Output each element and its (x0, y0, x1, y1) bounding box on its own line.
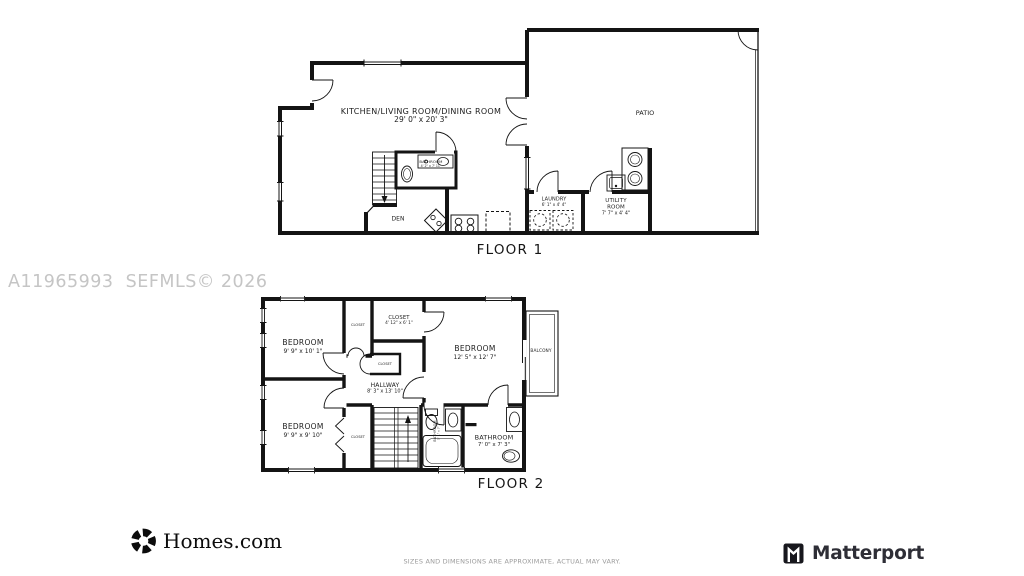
room-name: BEDROOM (282, 339, 323, 348)
disclaimer-text: SIZES AND DIMENSIONS ARE APPROXIMATE, AC… (403, 558, 620, 566)
sink-icon (510, 412, 520, 427)
room-label-closet-bottom: CLOSET (351, 435, 365, 439)
room-dims: 5' 1" x 7' 2" (437, 420, 441, 441)
room-name: UTILITY ROOM (600, 198, 633, 211)
staircase-down-icon (373, 152, 397, 205)
sink-icon (448, 413, 458, 427)
room-label-bedroom-right: BEDROOM 12' 5" x 12' 7" (454, 345, 497, 361)
mls-watermark: A11965993 SEFMLS© 2026 (8, 272, 267, 292)
floorplan-page: { "watermark": "A11965993 SEFMLS© 2026",… (0, 0, 1024, 576)
room-label-bedroom-bottom-left: BEDROOM 9' 9" x 9' 10" (282, 423, 323, 439)
towel-bar-icon (466, 423, 477, 426)
room-dims: 7' 0" x 7' 3" (475, 442, 514, 448)
room-label-closet-center: CLOSET (378, 362, 392, 366)
room-label-patio: PATIO (636, 110, 654, 118)
patio-fence (738, 30, 758, 233)
room-dims: 29' 0" x 20' 3" (341, 116, 501, 125)
room-dims: 9' 9" x 9' 10" (282, 432, 323, 439)
room-label-closet-top: CLOSET (351, 323, 365, 327)
floor1-walls (278, 30, 759, 233)
homes-logo: Homes.com (130, 527, 282, 555)
room-dims: 9' 9" x 10' 1" (282, 348, 323, 355)
room-label-balcony: BALCONY (530, 348, 551, 353)
stacked-washer-dryer-icon (622, 148, 648, 190)
room-name: BEDROOM (454, 345, 497, 354)
room-label-bedroom-top-left: BEDROOM 9' 9" x 10' 1" (282, 339, 323, 355)
room-name: HALLWAY (367, 382, 403, 389)
room-dims: 7' 7" x 4' 4" (600, 211, 633, 217)
kitchen-fixtures (425, 209, 511, 233)
washer-dryer-icon (530, 211, 573, 231)
room-dims: 8' 3" x 13' 10" (367, 389, 403, 395)
floor1-title: FLOOR 1 (477, 242, 544, 258)
room-label-bathroom1: BATHROOM 4' 2" x 7' 11" (419, 160, 442, 168)
room-dims: 4' 2" x 7' 11" (419, 164, 442, 168)
staircase-up-icon (374, 408, 418, 469)
kitchen-sink-icon (425, 209, 448, 232)
floor1-plan-svg (260, 18, 770, 250)
matterport-logo-text: Matterport (812, 543, 924, 564)
room-label-bathroom-middle: BATHROOM 5' 1" x 7' 2" (433, 420, 441, 441)
room-label-utility: UTILITY ROOM 7' 7" x 4' 4" (600, 198, 633, 217)
room-dims: 6' 1" x 4' 4" (542, 202, 567, 207)
room-dims: 12' 5" x 12' 7" (454, 354, 497, 361)
floor1-plan (260, 18, 770, 250)
room-label-laundry: LAUNDRY 6' 1" x 4' 4" (542, 197, 567, 208)
room-dims: 4' 12" x 6' 1" (385, 321, 413, 326)
floor1-wall-openings (278, 61, 613, 202)
room-label-closet-main: CLOSET 4' 12" x 6' 1" (385, 314, 413, 325)
homes-pinwheel-icon (130, 527, 157, 555)
room-label-hallway: HALLWAY 8' 3" x 13' 10" (367, 382, 403, 395)
homes-logo-text: Homes.com (163, 529, 282, 553)
room-label-kitchen-living-dining: KITCHEN/LIVING ROOM/DINING ROOM 29' 0" x… (341, 107, 501, 125)
refrigerator-icon (486, 212, 510, 233)
vanity-icon (507, 408, 524, 432)
room-label-bathroom-right: BATHROOM 7' 0" x 7' 3" (475, 434, 514, 448)
utility-fixtures (607, 148, 648, 191)
matterport-m-icon (782, 542, 805, 565)
floor2-title: FLOOR 2 (478, 476, 545, 492)
room-name: BEDROOM (282, 423, 323, 432)
room-label-den: DEN (392, 215, 405, 222)
matterport-logo: Matterport (782, 542, 924, 565)
